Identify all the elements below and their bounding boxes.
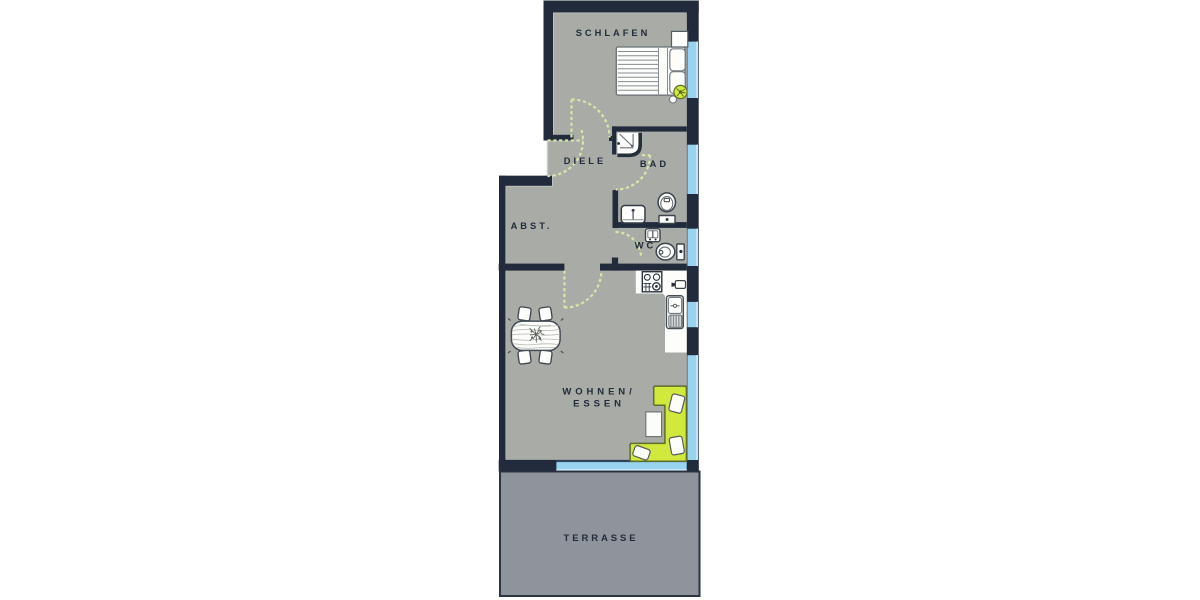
svg-text:SCHLAFEN: SCHLAFEN	[576, 28, 651, 38]
svg-text:BAD: BAD	[640, 159, 669, 169]
svg-text:ABST.: ABST.	[511, 221, 553, 231]
svg-text:WOHNEN/: WOHNEN/	[562, 387, 635, 398]
svg-text:WC: WC	[635, 241, 657, 251]
svg-text:DIELE: DIELE	[564, 156, 606, 166]
svg-text:TERRASSE: TERRASSE	[564, 533, 639, 544]
svg-text:ESSEN: ESSEN	[573, 399, 625, 410]
